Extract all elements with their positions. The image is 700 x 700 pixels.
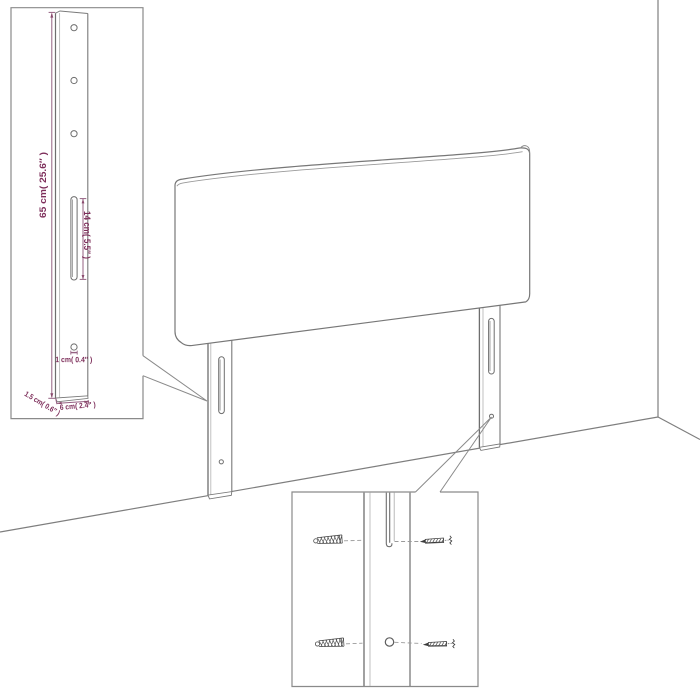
svg-text:14 cm( 5.5″ ): 14 cm( 5.5″ ) (82, 211, 92, 259)
svg-text:1 cm( 0.4″ ): 1 cm( 0.4″ ) (55, 355, 92, 364)
svg-text:65 cm( 25.6″ ): 65 cm( 25.6″ ) (38, 152, 48, 218)
